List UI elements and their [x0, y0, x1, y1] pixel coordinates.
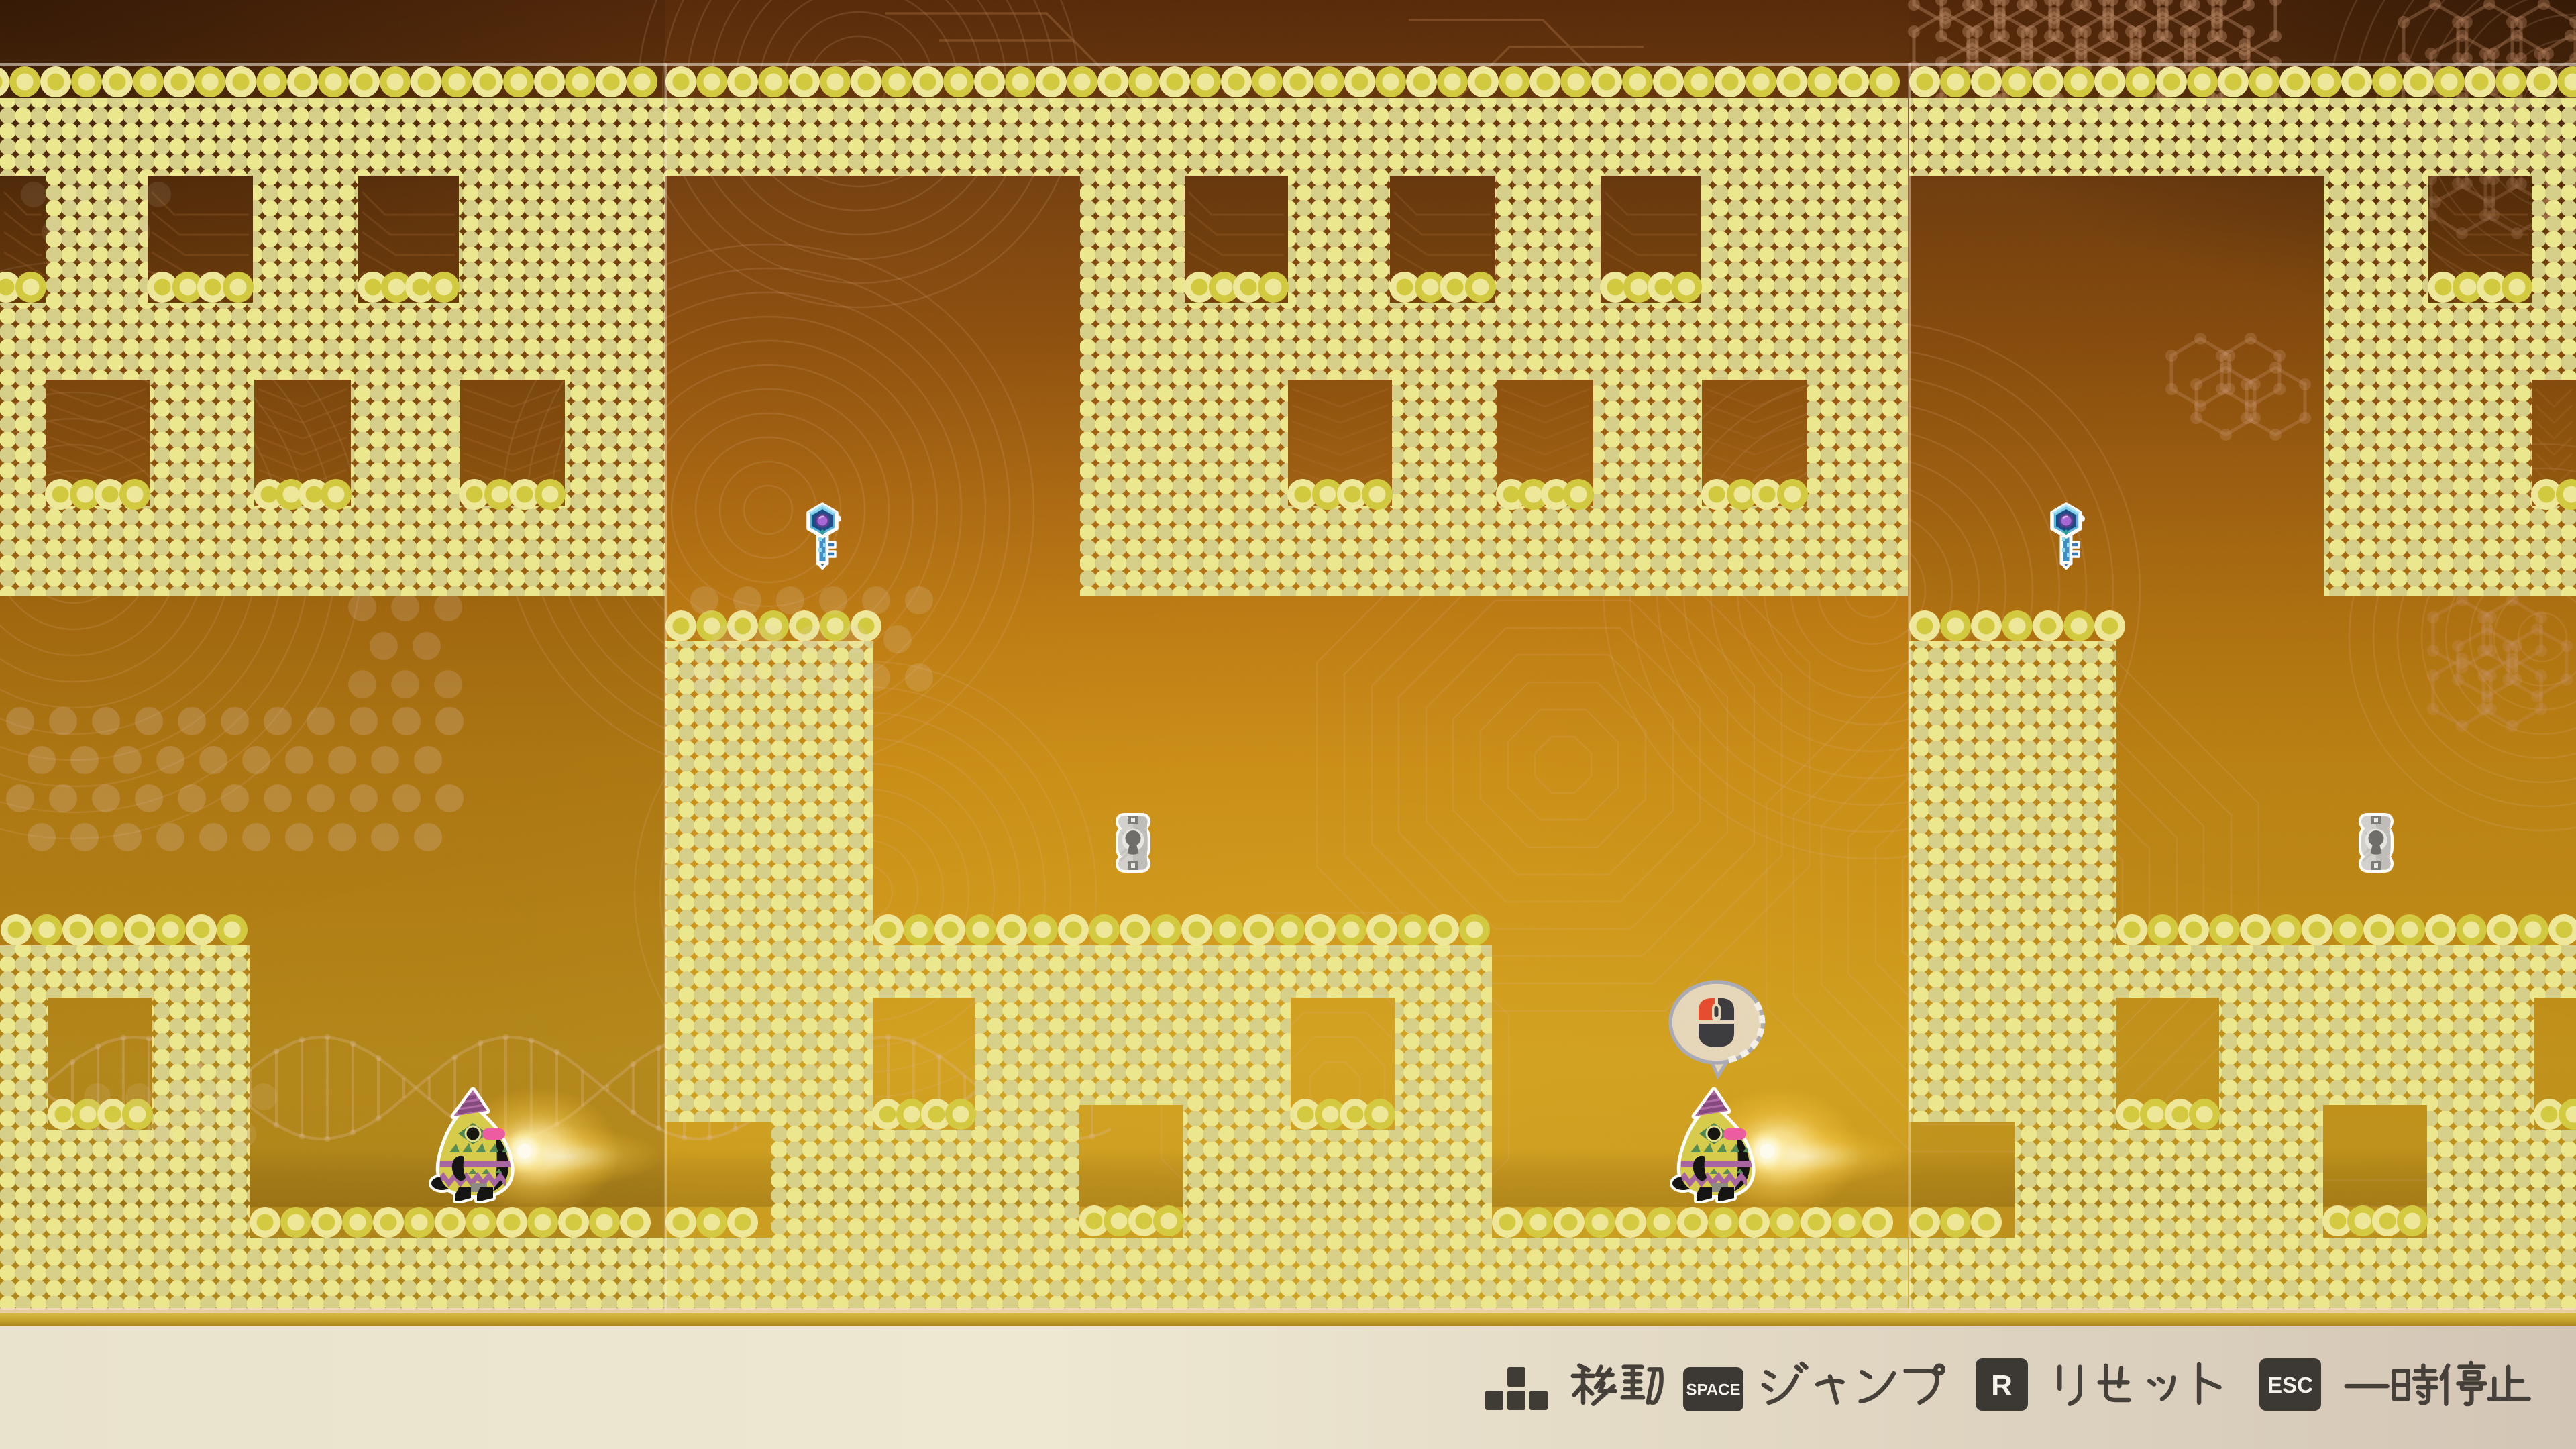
- svg-text:ESC: ESC: [2267, 1373, 2313, 1397]
- svg-text:R: R: [1991, 1369, 2012, 1402]
- svg-text:SPACE: SPACE: [1686, 1381, 1741, 1399]
